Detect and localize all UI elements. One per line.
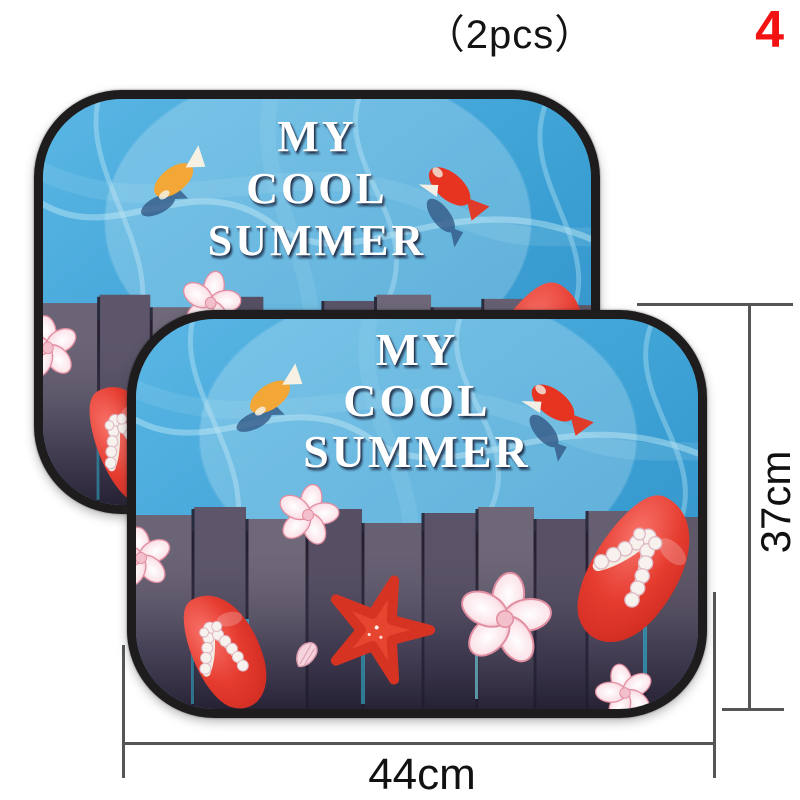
width-dimension-label: 44cm: [368, 750, 476, 800]
width-dimension-right-leader: [713, 592, 716, 778]
height-dimension-line: [748, 305, 751, 710]
pieces-count-label: （2pcs）: [400, 2, 620, 60]
sunshade-front: MY COOL SUMMER: [127, 310, 707, 718]
slogan-line-3: SUMMER: [136, 426, 698, 477]
width-dimension-line: [124, 742, 716, 745]
height-dimension-bottom-tick: [722, 708, 784, 711]
page-number-badge: 4: [755, 4, 784, 56]
slogan-line-2: COOL: [43, 163, 591, 215]
slogan-line-2: COOL: [136, 375, 698, 426]
height-dimension-label: 37cm: [752, 451, 800, 554]
sunshade-front-slogan: MY COOL SUMMER: [136, 324, 698, 477]
width-dimension-left-leader: [122, 645, 125, 778]
sunshade-back-slogan: MY COOL SUMMER: [43, 111, 591, 267]
slogan-line-3: SUMMER: [43, 215, 591, 267]
slogan-line-1: MY: [136, 324, 698, 375]
slogan-line-1: MY: [43, 111, 591, 163]
height-dimension-top-tick: [637, 303, 793, 306]
